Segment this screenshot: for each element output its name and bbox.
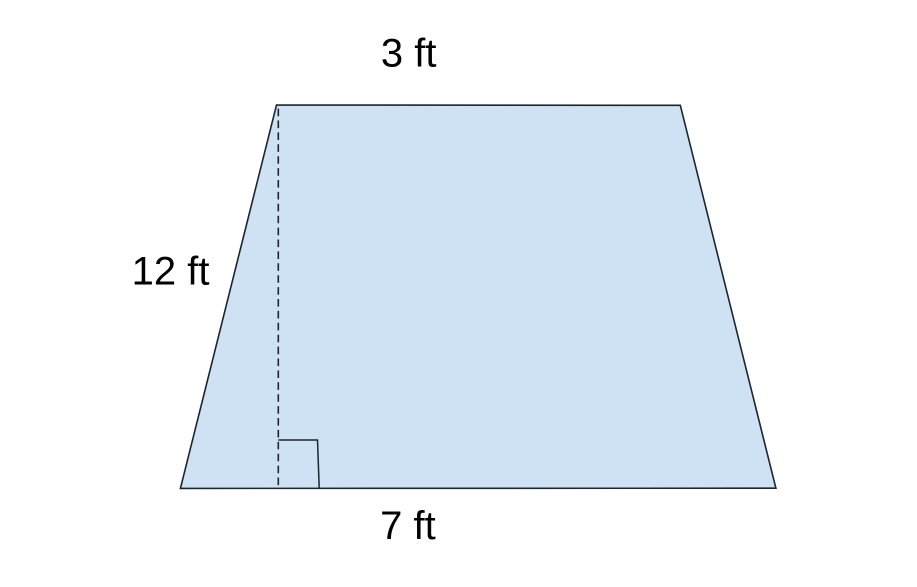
svg-text:7 ft: 7 ft xyxy=(380,504,436,548)
svg-text:3 ft: 3 ft xyxy=(381,32,437,76)
svg-text:12 ft: 12 ft xyxy=(132,249,210,293)
